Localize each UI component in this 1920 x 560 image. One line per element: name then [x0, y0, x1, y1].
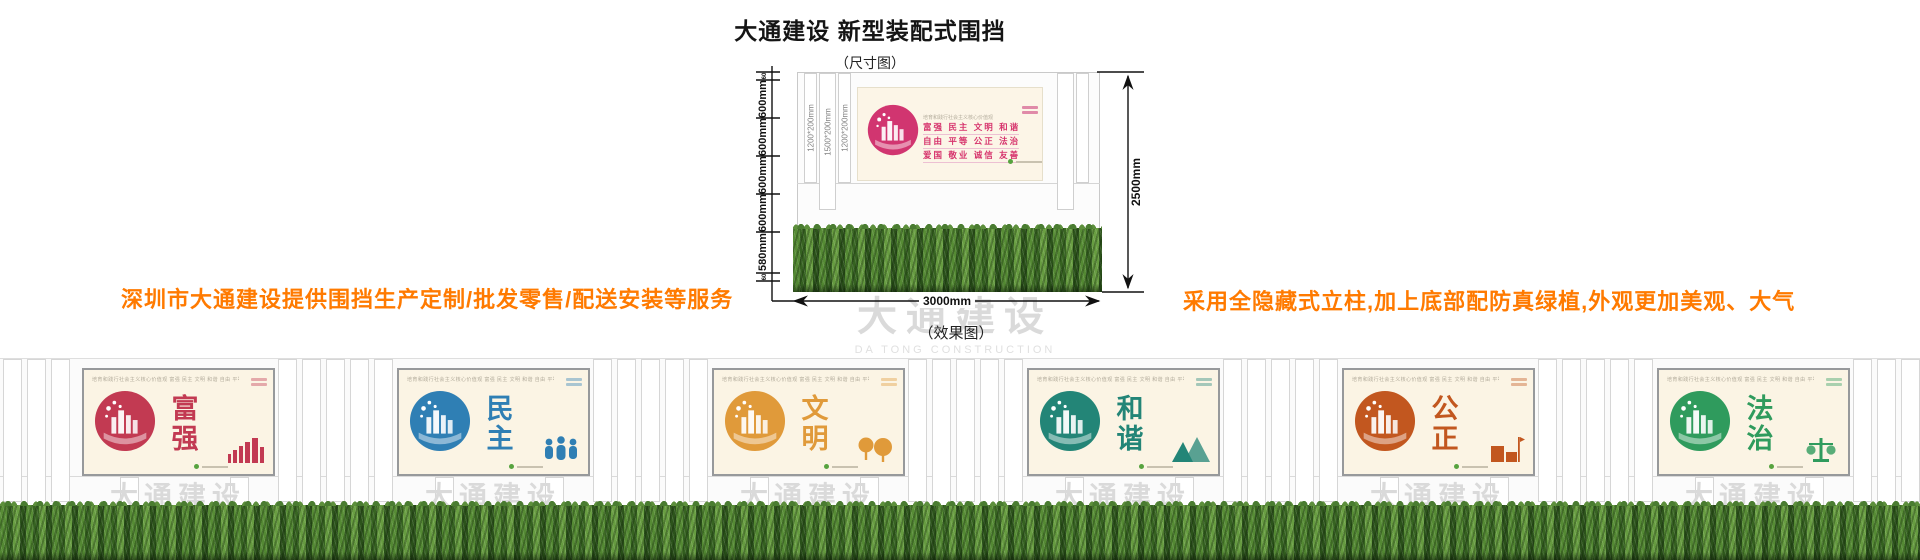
- panel-title: 民主: [483, 395, 517, 454]
- green-logo-icon: [194, 464, 199, 469]
- values-strip-text: 培育和践行社会主义核心价值观 富强 民主 文明 和谐 自由 平等 公正 法治 爱…: [1352, 376, 1499, 383]
- paper-cut-circle-icon: [1039, 390, 1101, 457]
- diagram-slat-1500: [1057, 73, 1074, 210]
- micro-slogan-placeholder: [566, 376, 582, 388]
- core-values-row: 自由 平等 公正 法治: [923, 135, 1019, 149]
- publisher-badge: [509, 464, 543, 469]
- paper-cut-circle-art: [867, 104, 919, 156]
- fence-slat: [956, 359, 975, 502]
- slat-size-label: 1500*200mm: [824, 108, 833, 156]
- effect-panel-6: 培育和践行社会主义核心价值观 富强 民主 文明 和谐 自由 平等 公正 法治 爱…: [1657, 368, 1850, 476]
- publisher-badge: [1139, 464, 1173, 469]
- panel-title: 文明: [798, 395, 832, 454]
- publisher-text-placeholder: [1462, 466, 1488, 468]
- dimension-caption: （尺寸图）: [734, 53, 1005, 73]
- values-strip-text: 培育和践行社会主义核心价值观 富强 民主 文明 和谐 自由 平等 公正 法治 爱…: [407, 376, 554, 383]
- fence-slat: [1538, 359, 1557, 502]
- diagram-fence-rail: [797, 183, 1100, 184]
- panel-title: 法治: [1743, 395, 1777, 454]
- effect-panel-1: 培育和践行社会主义核心价值观 富强 民主 文明 和谐 自由 平等 公正 法治 爱…: [82, 368, 275, 476]
- values-strip-text: 培育和践行社会主义核心价值观 富强 民主 文明 和谐 自由 平等 公正 法治 爱…: [1667, 376, 1814, 383]
- slat-size-label: 1200*200mm: [841, 104, 850, 152]
- page-title: 大通建设 新型装配式围挡: [734, 12, 1005, 46]
- paper-cut-circle-art: [724, 390, 786, 452]
- diagram-slat-1200: [1076, 73, 1089, 183]
- dim-60: 60: [762, 73, 768, 80]
- fence-slat: [3, 359, 22, 502]
- fence-slat: [1004, 359, 1023, 502]
- micro-slogan-placeholder: [1826, 376, 1842, 388]
- paper-cut-circle-icon: [1669, 390, 1731, 457]
- micro-slogan-placeholder: [1196, 376, 1212, 388]
- building-flag-icon: [1487, 435, 1525, 468]
- core-values-row: 爱国 敬业 诚信 友善: [923, 149, 1019, 163]
- watermark-en: DA TONG CONSTRUCTION: [855, 344, 1056, 356]
- panel-title: 公正: [1428, 395, 1462, 454]
- dim-600: 600mm: [757, 156, 769, 194]
- paper-cut-circle-art: [94, 390, 156, 452]
- fence-slat: [374, 359, 393, 502]
- paper-cut-circle-art: [1039, 390, 1101, 452]
- green-logo-icon: [1139, 464, 1144, 469]
- publisher-badge: [1769, 464, 1803, 469]
- panel-title: 和谐: [1113, 395, 1147, 454]
- effect-panel-5: 培育和践行社会主义核心价值观 富强 民主 文明 和谐 自由 平等 公正 法治 爱…: [1342, 368, 1535, 476]
- page-header: 大通建设 新型装配式围挡 （尺寸图）: [734, 12, 1005, 73]
- publisher-badge: [824, 464, 858, 469]
- right-marketing-note: 采用全隐藏式立柱,加上底部配防真绿植,外观更加美观、大气: [1183, 284, 1795, 316]
- effect-panel-3: 培育和践行社会主义核心价值观 富强 民主 文明 和谐 自由 平等 公正 法治 爱…: [712, 368, 905, 476]
- green-logo-icon: [1008, 159, 1013, 164]
- diagram-grass-hedge: [793, 228, 1102, 292]
- effect-caption: （效果图）: [918, 322, 993, 343]
- publisher-badge: [1454, 464, 1488, 469]
- dim-600: 600mm: [757, 118, 769, 156]
- publisher-text-placeholder: [202, 466, 228, 468]
- core-values-row: 富强 民主 文明 和谐: [923, 121, 1019, 135]
- city-bars-icon: [227, 435, 265, 468]
- fence-slat: [1223, 359, 1242, 502]
- fence-slat: [641, 359, 660, 502]
- fence-slat: [326, 359, 345, 502]
- fence-slat: [1634, 359, 1653, 502]
- dim-600: 600mm: [757, 194, 769, 232]
- values-strip-text: 培育和践行社会主义核心价值观 富强 民主 文明 和谐 自由 平等 公正 法治 爱…: [1037, 376, 1184, 383]
- publisher-text-placeholder: [832, 466, 858, 468]
- publisher-text-placeholder: [1016, 161, 1042, 163]
- paper-cut-circle-icon: [724, 390, 786, 457]
- paper-cut-circle-icon: [94, 390, 156, 457]
- people-icon: [542, 435, 580, 468]
- values-strip-text: 培育和践行社会主义核心价值观 富强 民主 文明 和谐 自由 平等 公正 法治 爱…: [722, 376, 869, 383]
- trees-icon: [857, 435, 895, 468]
- mountains-icon: [1172, 435, 1210, 468]
- paper-cut-circle-art: [1669, 390, 1731, 452]
- paper-cut-circle-icon: [409, 390, 471, 457]
- green-logo-icon: [509, 464, 514, 469]
- micro-slogan-placeholder: [1511, 376, 1527, 388]
- dim-60: 60: [762, 274, 768, 281]
- slat-size-label: 1200*200mm: [807, 104, 816, 152]
- publisher-badge: [1008, 159, 1042, 164]
- dim-580: 580mm: [757, 233, 769, 271]
- green-logo-icon: [1454, 464, 1459, 469]
- effect-grass-hedge: [0, 505, 1920, 560]
- fence-slat: [1853, 359, 1872, 502]
- fence-slat: [1586, 359, 1605, 502]
- publisher-badge: [194, 464, 228, 469]
- dim-total-width: 3000mm: [919, 294, 975, 308]
- justice-figure-icon: [1802, 435, 1840, 468]
- micro-slogan-placeholder: [881, 376, 897, 388]
- micro-slogan-placeholder: [1022, 104, 1038, 116]
- effect-panel-2: 培育和践行社会主义核心价值观 富强 民主 文明 和谐 自由 平等 公正 法治 爱…: [397, 368, 590, 476]
- micro-slogan-placeholder: [251, 376, 267, 388]
- paper-cut-circle-art: [1354, 390, 1416, 452]
- fence-slat: [1901, 359, 1920, 502]
- dim-total-height: 2500mm: [1129, 158, 1143, 206]
- poster-micro-header: 培育和践行社会主义核心价值观: [923, 114, 1023, 121]
- fence-slat: [689, 359, 708, 502]
- fence-slat: [1319, 359, 1338, 502]
- left-marketing-note: 深圳市大通建设提供围挡生产定制/批发零售/配送安装等服务: [121, 282, 733, 314]
- effect-panel-4: 培育和践行社会主义核心价值观 富强 民主 文明 和谐 自由 平等 公正 法治 爱…: [1027, 368, 1220, 476]
- fence-slat: [1271, 359, 1290, 502]
- paper-cut-circle-icon: [1354, 390, 1416, 457]
- paper-cut-circle-icon: [867, 104, 919, 161]
- publisher-text-placeholder: [1147, 466, 1173, 468]
- diagram-poster: 培育和践行社会主义核心价值观 富强 民主 文明 和谐 自由 平等 公正 法治 爱…: [857, 87, 1043, 181]
- values-strip-text: 培育和践行社会主义核心价值观 富强 民主 文明 和谐 自由 平等 公正 法治 爱…: [92, 376, 239, 383]
- publisher-text-placeholder: [517, 466, 543, 468]
- page: { "header": { "title": "大通建设 新型装配式围挡", "…: [0, 0, 1920, 560]
- publisher-text-placeholder: [1777, 466, 1803, 468]
- panel-title: 富强: [168, 395, 202, 454]
- paper-cut-circle-art: [409, 390, 471, 452]
- fence-slat: [51, 359, 70, 502]
- fence-slat: [278, 359, 297, 502]
- green-logo-icon: [824, 464, 829, 469]
- fence-slat: [908, 359, 927, 502]
- dim-600: 600mm: [757, 80, 769, 118]
- fence-slat: [593, 359, 612, 502]
- green-logo-icon: [1769, 464, 1774, 469]
